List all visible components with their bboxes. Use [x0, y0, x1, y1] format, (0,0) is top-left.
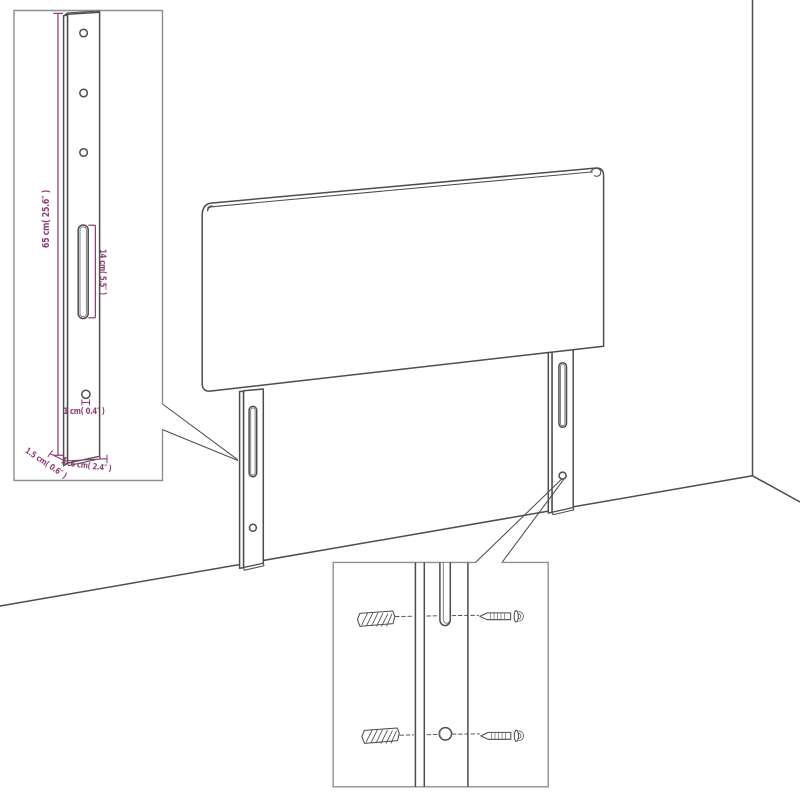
post-bottom-hole: [82, 390, 90, 398]
callout-wedge-bottom-right: [502, 480, 564, 563]
right-leg-hole: [559, 472, 566, 479]
right-leg-slot: [559, 363, 567, 428]
dim-label-height: 65 cm( 25.6″ ): [42, 189, 52, 247]
screw-bottom-head: [514, 730, 518, 741]
wall-plug-bottom-body: [362, 728, 399, 743]
post-hole-3: [80, 149, 88, 157]
post-hole-1: [80, 29, 88, 37]
inset-screws-detail: [333, 479, 563, 787]
left-leg-hole: [249, 524, 256, 531]
inset-slot: [440, 563, 450, 626]
dim-label-hole: 1 cm( 0.4″ ): [63, 406, 104, 414]
diagram-canvas: 65 cm( 25.6″ ) 14 cm( 5.5″ ) 1 cm( 0.4″ …: [0, 0, 800, 800]
wall-plug-top-body: [357, 611, 394, 626]
screw-bottom-body: [481, 732, 511, 739]
wall-plug-top: [357, 611, 394, 627]
headboard-panel: [202, 168, 603, 391]
floor-wall-line-right: [753, 476, 800, 502]
headboard: [202, 168, 603, 391]
left-leg-slot: [249, 406, 257, 476]
post-hole-2: [80, 89, 88, 97]
callout-wedge-left-upper: [163, 404, 238, 459]
left-leg: [240, 389, 264, 570]
screw-top-head: [514, 611, 518, 622]
callout-wedge-left-lower: [163, 430, 238, 461]
callout-wedge-bottom-left: [476, 479, 562, 563]
dim-label-slot: 14 cm( 5.5″ ): [98, 249, 106, 295]
right-leg: [548, 349, 574, 515]
inset-hole: [439, 728, 451, 740]
wall-plug-bottom: [362, 728, 399, 744]
screw-top-body: [480, 613, 511, 620]
line-art: [0, 0, 800, 800]
